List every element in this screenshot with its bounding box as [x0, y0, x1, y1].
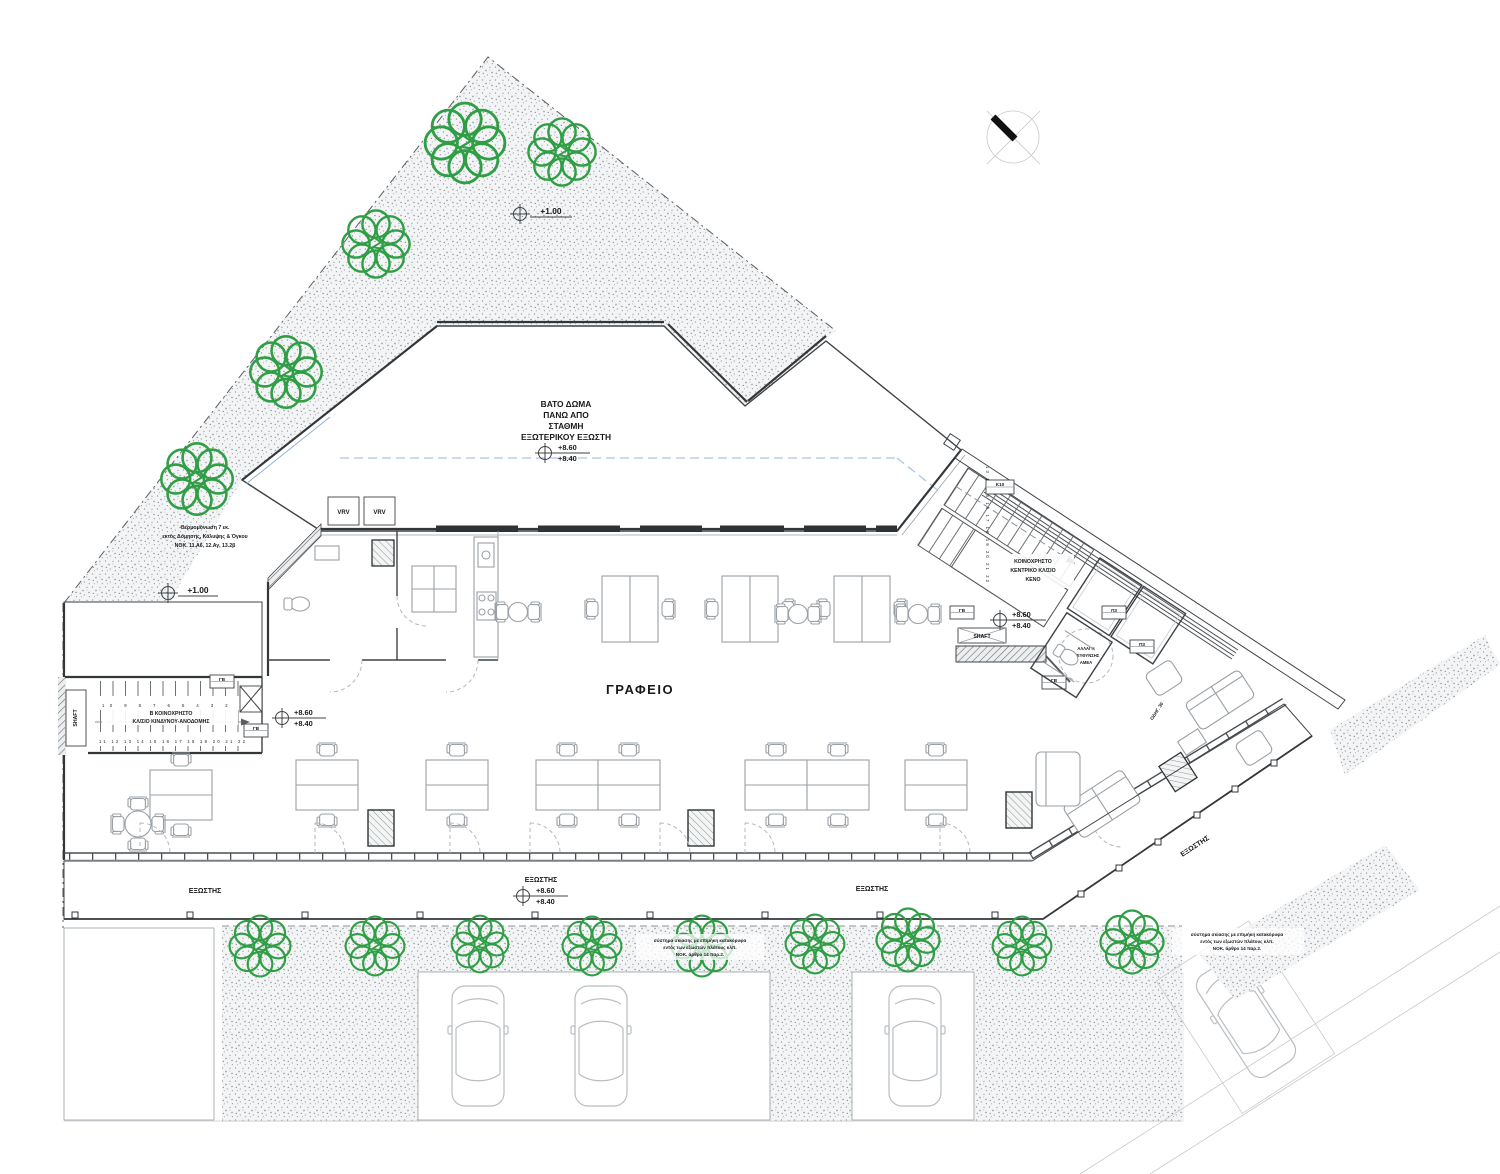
- svg-text:ΕΞΩΣΤΗΣ: ΕΞΩΣΤΗΣ: [1180, 835, 1211, 859]
- svg-text:ΣΤΑΘΜΗ: ΣΤΑΘΜΗ: [549, 421, 584, 431]
- desk-group: [296, 743, 358, 827]
- car: [571, 986, 631, 1106]
- svg-text:ΑΜΕΑ: ΑΜΕΑ: [1080, 660, 1092, 665]
- svg-text:ΓΒ: ΓΒ: [253, 726, 260, 731]
- door-tag: ΓΒ: [950, 606, 974, 619]
- svg-text:+8.60: +8.60: [536, 886, 555, 895]
- svg-text:ΝΟΚ. άρθρο 14 παρ.2.: ΝΟΚ. άρθρο 14 παρ.2.: [1213, 946, 1261, 951]
- svg-text:SHAFT: SHAFT: [973, 634, 991, 640]
- svg-text:+8.60: +8.60: [1012, 610, 1031, 619]
- svg-text:Κ10: Κ10: [996, 482, 1005, 487]
- svg-text:Θερμομόνωση 7 εκ.: Θερμομόνωση 7 εκ.: [181, 525, 230, 531]
- office-desks-lower: [111, 743, 967, 851]
- ramp-chevron: [64, 928, 214, 1120]
- left-wing: [268, 524, 498, 692]
- site-ground-lower: [64, 635, 1500, 1174]
- door-tag: ΓΒ: [210, 675, 234, 688]
- car: [448, 986, 508, 1106]
- svg-text:Π3: Π3: [1111, 608, 1117, 613]
- column: [372, 540, 394, 566]
- svg-text:+8.40: +8.40: [294, 719, 313, 728]
- balcony-label: ΕΞΩΣΤΗΣ: [189, 888, 222, 895]
- svg-text:+8.60: +8.60: [558, 443, 577, 452]
- svg-text:ΒΑΤΟ ΔΩΜΑ: ΒΑΤΟ ΔΩΜΑ: [541, 399, 592, 409]
- round-table: [775, 604, 821, 624]
- svg-text:ΕΞΩΤΕΡΙΚΟΥ ΕΞΩΣΤΗ: ΕΞΩΤΕΡΙΚΟΥ ΕΞΩΣΤΗ: [521, 432, 611, 442]
- level-value: +1.00: [540, 206, 562, 216]
- parking-area: [852, 972, 974, 1120]
- svg-text:VRV: VRV: [337, 510, 349, 516]
- svg-text:ΝΟΚ. άρθρο 14 παρ.2.: ΝΟΚ. άρθρο 14 παρ.2.: [676, 952, 724, 957]
- level-marker-balcony: +8.60 +8.40: [513, 886, 568, 906]
- desk-group: [807, 743, 869, 827]
- north-arrow: [987, 111, 1040, 164]
- north-arrow-pointer: [993, 117, 1015, 139]
- car: [885, 986, 945, 1106]
- toilet: [284, 597, 310, 611]
- sink: [315, 546, 339, 560]
- roof-note: ΒΑΤΟ ΔΩΜΑ ΠΑΝΩ ΑΠΟ ΣΤΑΘΜΗ ΕΞΩΤΕΡΙΚΟΥ ΕΞΩ…: [521, 399, 611, 442]
- k10-tag: Κ10: [986, 480, 1014, 494]
- office-desks-upper: [495, 576, 941, 642]
- office-label: ΓΡΑΦΕΙΟ: [606, 682, 674, 697]
- svg-text:+8.40: +8.40: [536, 897, 555, 906]
- desk-group: [598, 743, 660, 827]
- svg-text:ΚΕΝΟ: ΚΕΝΟ: [1026, 577, 1041, 583]
- svg-text:ΚΕΝΤΡΙΚΟ ΚΛ/ΣΙΟ: ΚΕΝΤΡΙΚΟ ΚΛ/ΣΙΟ: [1010, 568, 1055, 574]
- left-stairs-label: Β ΚΟΙΝΟΧΡΗΣΤΟ: [150, 711, 193, 717]
- svg-text:+8.40: +8.40: [558, 454, 577, 463]
- level-marker-roof: +8.60 +8.40: [535, 443, 590, 463]
- central-staircase: 13 14 15 16 17 18 19 20 21 22 ΚΟΙΝΟΧΡΗΣΤ…: [918, 466, 1094, 627]
- vrv-units: VRV VRV: [328, 497, 395, 525]
- desk-group: [536, 743, 598, 827]
- left-landing: [64, 602, 262, 677]
- round-table: [895, 604, 941, 624]
- svg-text:ΓΒ: ΓΒ: [219, 677, 226, 682]
- svg-text:+8.60: +8.60: [294, 708, 313, 717]
- parking-area: [418, 972, 770, 1120]
- desk-group: [426, 743, 488, 827]
- svg-text:ΠΑΝΩ ΑΠΟ: ΠΑΝΩ ΑΠΟ: [543, 410, 589, 420]
- svg-text:εκτός Δόμησης, Κάλυψης & Όγκου: εκτός Δόμησης, Κάλυψης & Όγκου: [162, 534, 247, 540]
- p3-tag: Π3: [1102, 606, 1126, 619]
- svg-text:ΓΒ: ΓΒ: [959, 608, 966, 613]
- level-value: +1.00: [187, 585, 209, 595]
- level-marker-left-stairs: +8.60 +8.40: [272, 708, 326, 728]
- desk-group: [905, 743, 967, 827]
- lounge-furniture: [1036, 659, 1274, 839]
- svg-text:SHAFT: SHAFT: [73, 709, 79, 727]
- round-table: [495, 602, 541, 622]
- svg-text:+8.40: +8.40: [1012, 621, 1031, 630]
- floor-plan-canvas: +1.00 +1.00 Θερμομόνωση 7 εκ. εκτός Δόμη…: [0, 0, 1500, 1174]
- desk-group: [585, 576, 675, 642]
- right-wing: SHAFT ΓΒ ΓΒ +8.60 +8.40 ΑΛΛΑΓΗ ΔΙΕΥΘΥΝΣΗ…: [950, 558, 1274, 839]
- svg-text:ΕΞΩΣΤΗΣ: ΕΞΩΣΤΗΣ: [525, 877, 558, 884]
- central-stairs-label: ΚΟΙΝΟΧΡΗΣΤΟ: [1014, 559, 1052, 565]
- desk-group: [745, 743, 807, 827]
- svg-text:ΕΞΩΣΤΗΣ: ΕΞΩΣΤΗΣ: [856, 886, 889, 893]
- floor-plan-drawing: +1.00 +1.00 Θερμομόνωση 7 εκ. εκτός Δόμη…: [0, 0, 1500, 1174]
- p3-tag: Π3: [1130, 640, 1154, 653]
- svg-text:Π3: Π3: [1139, 642, 1145, 647]
- door-tag: ΓΒ: [244, 724, 268, 737]
- odig-label: ΟΔΗΓ. 30: [1149, 701, 1164, 721]
- svg-text:VRV: VRV: [373, 510, 385, 516]
- planting-band: [1330, 635, 1500, 775]
- svg-text:ΝΟΚ. 11.Α6, 12.Αγ, 13.2β: ΝΟΚ. 11.Α6, 12.Αγ, 13.2β: [175, 543, 236, 549]
- shaft-right: SHAFT: [956, 628, 1070, 682]
- svg-text:ΚΛ/ΣΙΟ ΚΙΝΔΥΝΟΥ-ΑΝΟΔΟΜΗΣ: ΚΛ/ΣΙΟ ΚΙΝΔΥΝΟΥ-ΑΝΟΔΟΜΗΣ: [132, 719, 209, 725]
- desk-group: [817, 576, 907, 642]
- north-wall-windows: [321, 450, 965, 535]
- shading-note-right: σύστημα σκίασης με επιμήκη κατακόρυφα εν…: [1172, 928, 1304, 955]
- shading-note-bottom: σύστημα σκίασης με επιμήκη κατακόρυφα εν…: [636, 934, 764, 960]
- planting-band: [1200, 845, 1420, 1000]
- balcony-posts: [72, 760, 1277, 918]
